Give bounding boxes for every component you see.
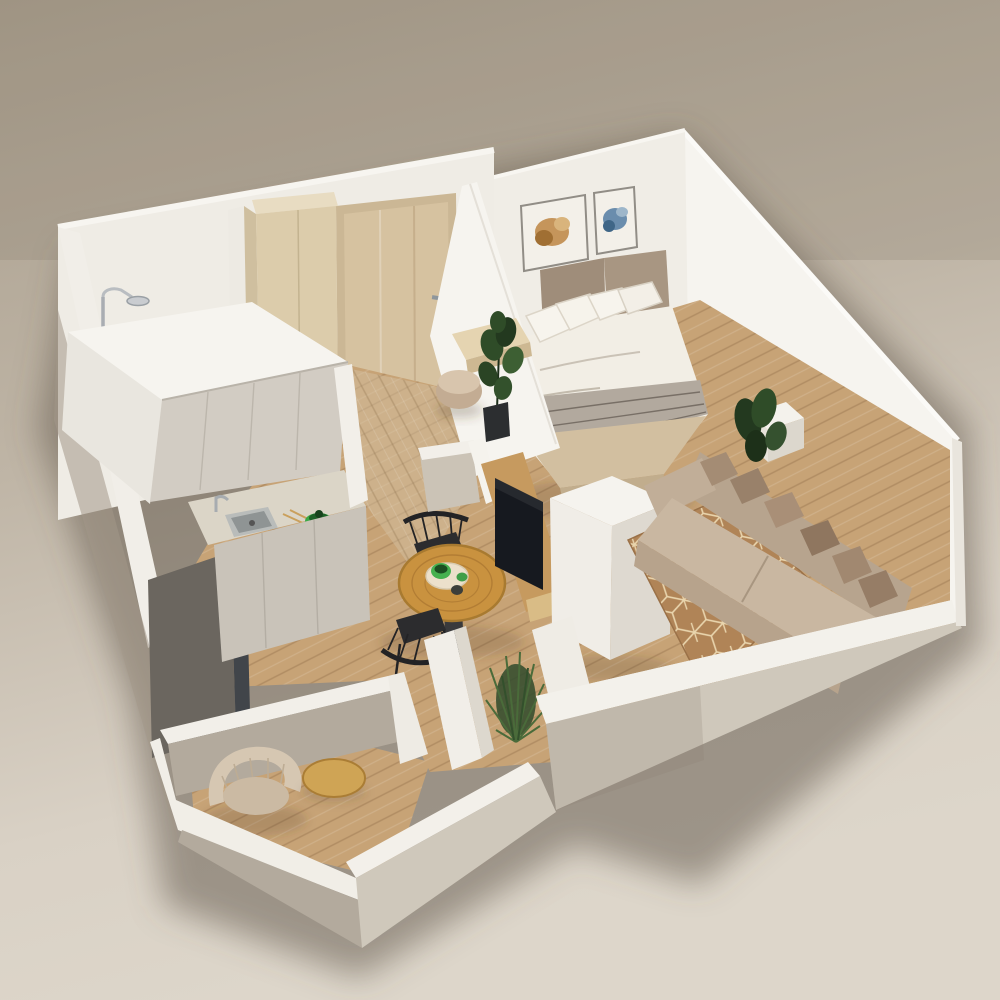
oval-side-table (303, 759, 365, 797)
door-grain (380, 210, 381, 397)
floorplan-screenshot: 3D isometric cutaway floor plan render o… (0, 0, 1000, 1000)
plant-pot-dark (483, 402, 510, 442)
armchair-seat (223, 777, 289, 815)
green-cup-large-inner (435, 565, 448, 574)
dark-mug (451, 585, 463, 595)
green-pot-knob (315, 510, 323, 518)
pouf-top (438, 370, 480, 394)
sink-drain (249, 520, 255, 526)
green-cup-small (457, 573, 468, 582)
apartment-3d-render: 3D isometric cutaway floor plan render o… (0, 0, 1000, 1000)
door-grain-2 (414, 206, 415, 394)
shower-head (127, 297, 149, 306)
